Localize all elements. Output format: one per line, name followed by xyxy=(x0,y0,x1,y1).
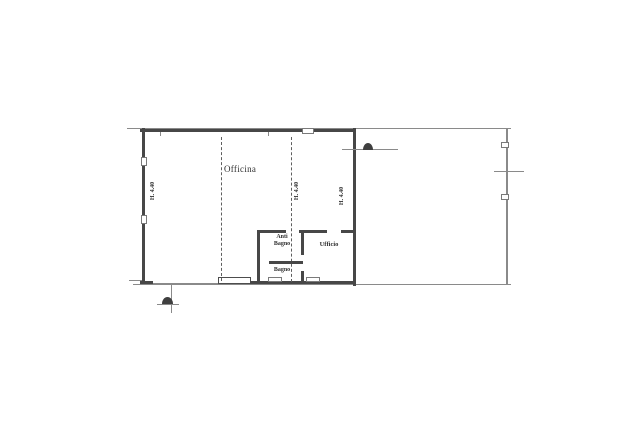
left-wall-window-notch xyxy=(141,215,147,224)
section-marker-icon xyxy=(162,297,173,304)
room-label-ufficio: Ufficio xyxy=(308,241,350,248)
building-bottom-wall-segment xyxy=(140,281,153,284)
section-marker-base-line xyxy=(157,304,179,305)
right-wall-pier-marker xyxy=(501,142,509,148)
bottom-door-sill xyxy=(218,277,251,284)
height-label-right-text: H. 4.40 xyxy=(339,187,345,205)
top-wall-tick xyxy=(268,132,269,136)
room-label-bagno: Bagno xyxy=(266,267,298,273)
top-wall-pier-marker xyxy=(302,128,314,134)
bottom-threshold-marker xyxy=(306,277,320,282)
bagno-ufficio-wall-segment xyxy=(301,230,304,255)
height-label-center-text: H. 4.40 xyxy=(294,182,300,200)
section-marker-icon xyxy=(363,143,373,150)
bottom-opening-threshold-line xyxy=(153,283,219,284)
outer-bottom-line xyxy=(133,284,511,285)
bay-division-dashed-line xyxy=(221,137,222,281)
right-axis-extension-line xyxy=(494,171,524,172)
right-wall-pier-marker xyxy=(501,194,509,200)
top-wall-tick xyxy=(160,132,161,136)
antibagno-bagno-divider-wall xyxy=(269,261,303,264)
height-label-left: H. 4.40 xyxy=(138,188,168,194)
anti-bagno-line1: Anti xyxy=(276,234,287,240)
height-label-left-text: H. 4.40 xyxy=(150,182,156,200)
room-label-officina: Officina xyxy=(224,164,256,174)
height-label-center: H. 4.40 xyxy=(282,188,312,194)
height-label-right: H. 4.40 xyxy=(327,193,357,199)
room-block-top-wall-segment xyxy=(341,230,355,233)
bottom-threshold-marker xyxy=(268,277,282,282)
building-left-wall xyxy=(142,128,145,283)
room-block-left-wall xyxy=(257,230,260,283)
outer-right-wall-line xyxy=(506,128,508,285)
anti-bagno-line2: Bagno xyxy=(274,241,290,247)
bagno-ufficio-wall-segment xyxy=(301,271,304,283)
floor-plan: Officina Anti Bagno Bagno Ufficio H. 4.4… xyxy=(0,0,640,427)
building-top-wall xyxy=(140,129,356,132)
room-label-anti-bagno: Anti Bagno xyxy=(266,234,298,248)
room-block-top-wall-segment xyxy=(257,230,286,233)
building-right-wall xyxy=(353,128,356,286)
left-wall-window-notch xyxy=(141,157,147,166)
